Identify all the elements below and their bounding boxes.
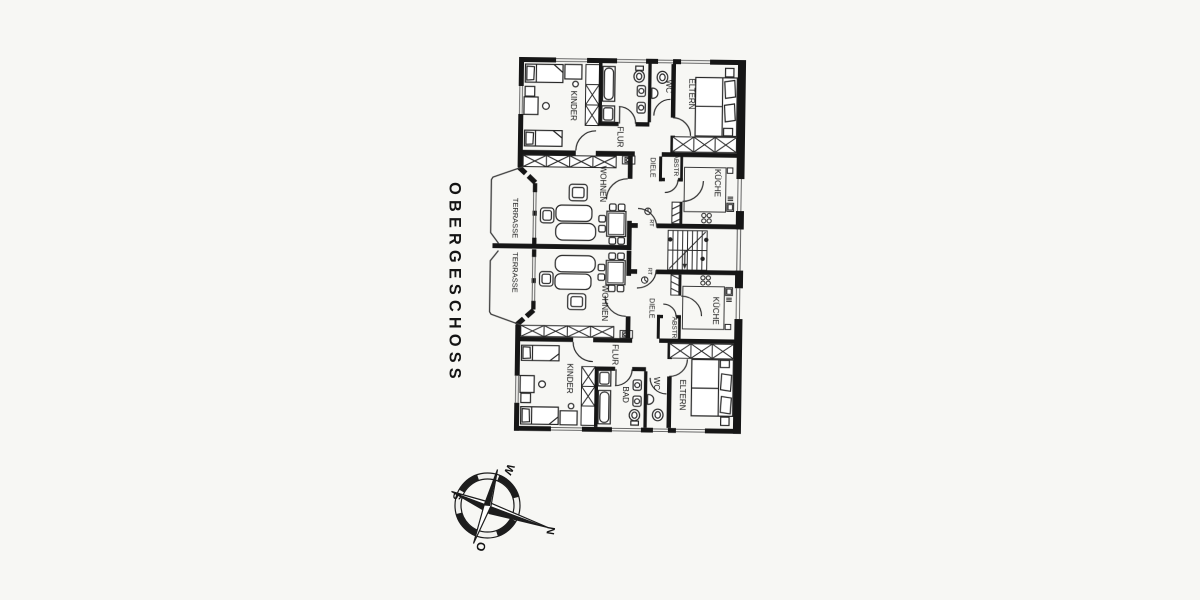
svg-text:ABSTR: ABSTR (672, 154, 679, 176)
svg-text:TERRASSE: TERRASSE (510, 198, 520, 239)
svg-text:OBERGESCHOSS: OBERGESCHOSS (446, 182, 464, 384)
svg-text:KÜCHE: KÜCHE (711, 297, 720, 325)
svg-text:KINDER: KINDER (565, 363, 574, 394)
svg-text:WOHNEN: WOHNEN (598, 166, 608, 203)
svg-text:ELTERN: ELTERN (687, 78, 696, 109)
svg-text:ABSTR: ABSTR (670, 317, 677, 339)
svg-text:DIELE: DIELE (648, 157, 655, 178)
svg-text:DIELE: DIELE (648, 298, 655, 319)
svg-text:WOHNEN: WOHNEN (600, 285, 610, 322)
svg-text:FLUR: FLUR (610, 344, 619, 365)
svg-text:WC: WC (664, 80, 673, 94)
svg-text:ELTERN: ELTERN (678, 379, 687, 410)
svg-text:TERRASSE: TERRASSE (510, 252, 520, 293)
svg-text:WC: WC (652, 377, 661, 391)
svg-text:RT: RT (648, 219, 654, 227)
svg-text:KINDER: KINDER (569, 91, 578, 122)
svg-text:RT: RT (646, 268, 652, 276)
svg-text:FLUR: FLUR (615, 126, 624, 147)
svg-text:KÜCHE: KÜCHE (713, 169, 722, 197)
svg-text:BAD: BAD (621, 386, 630, 403)
